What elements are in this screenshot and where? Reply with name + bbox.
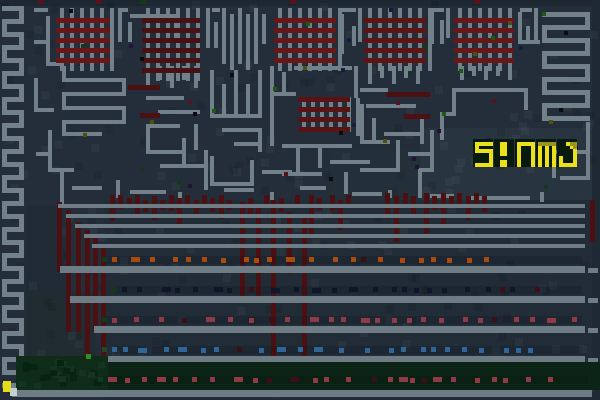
hud-letter-pixel <box>503 163 507 167</box>
mottle-tile <box>386 305 394 313</box>
hud-letter-pixel <box>545 163 549 167</box>
dash <box>269 317 274 322</box>
ground-mottle <box>88 372 95 378</box>
dash <box>478 318 483 323</box>
dash <box>294 287 299 292</box>
mottle-tile <box>445 178 453 186</box>
brick-tick-bottom <box>288 63 292 71</box>
ground-mottle <box>59 376 66 382</box>
brick-bar <box>298 97 350 102</box>
mottle-tile <box>440 142 448 150</box>
maze-segment <box>360 168 400 172</box>
dash <box>463 317 468 322</box>
brick-gridline <box>176 18 180 73</box>
mottle-tile <box>452 176 460 184</box>
drip-line <box>169 195 174 211</box>
brick-tick-top <box>80 8 84 18</box>
scatter-dot <box>150 120 154 124</box>
brick-bar <box>274 38 336 43</box>
maze-segment <box>34 108 54 112</box>
dash <box>572 317 577 322</box>
mottle-tile <box>435 86 443 94</box>
red-bar <box>128 85 160 90</box>
dash <box>234 377 243 382</box>
maze-segment <box>48 130 52 172</box>
maze-segment <box>62 124 66 132</box>
hud-letter-pixel <box>538 163 542 167</box>
dash-lead-dot <box>112 287 117 292</box>
white-pixel <box>10 388 17 396</box>
dash <box>400 258 405 263</box>
ground-mottle <box>34 383 41 389</box>
brick-tick-top <box>100 8 104 18</box>
mottle-tile <box>179 276 187 284</box>
dash <box>324 377 329 382</box>
mottle-tile <box>498 274 506 282</box>
maze-segment <box>258 70 262 114</box>
brick-tick-bottom <box>308 63 312 71</box>
scatter-dot <box>129 44 133 48</box>
dash <box>259 348 264 353</box>
dash <box>475 378 480 383</box>
stripe-end-block <box>588 268 598 273</box>
drip-line <box>177 198 182 224</box>
mottle-tile <box>444 302 452 310</box>
dash <box>108 377 117 382</box>
dash <box>504 348 509 353</box>
maze-segment <box>34 8 48 12</box>
mottle-tile <box>497 128 505 136</box>
red-bar <box>404 114 430 119</box>
maze-segment <box>128 22 132 42</box>
scatter-dot <box>284 172 288 176</box>
dash <box>112 257 117 262</box>
scatter-dot <box>83 133 87 137</box>
brick-tick-bottom <box>60 63 64 71</box>
scatter-dot <box>459 69 463 73</box>
dash <box>514 317 519 322</box>
dash <box>125 378 130 383</box>
top-edge-dot <box>38 0 44 4</box>
brick-bar <box>142 38 200 43</box>
drip-line <box>57 202 62 272</box>
dash <box>202 257 207 262</box>
radiator-line <box>542 90 590 95</box>
brick-gridline <box>338 18 342 63</box>
scatter-dot <box>303 66 307 70</box>
dash <box>399 377 408 382</box>
dash <box>422 378 427 383</box>
brick-bar <box>56 48 110 53</box>
scatter-dot <box>519 46 523 50</box>
dash <box>451 377 456 382</box>
dash <box>277 347 286 352</box>
top-edge-dot <box>140 0 146 4</box>
brick-bar <box>298 117 350 122</box>
dash <box>392 318 397 323</box>
dash <box>123 347 128 352</box>
ground-mottle <box>63 368 70 374</box>
maze-segment <box>210 70 214 114</box>
scatter-dot <box>473 52 477 56</box>
scatter-dot <box>69 9 73 13</box>
maze-segment <box>210 156 214 184</box>
brick-tick-bottom <box>146 73 150 81</box>
maze-segment <box>194 124 198 150</box>
ground-mottle <box>30 364 37 370</box>
dash <box>442 288 447 293</box>
scatter-dot <box>193 112 197 116</box>
brick-tick-top <box>196 8 200 18</box>
brick-tick-bottom <box>186 73 190 81</box>
dash <box>214 347 219 352</box>
ground-mottle <box>98 362 105 368</box>
brick-bar <box>274 28 336 33</box>
maze-segment <box>540 192 544 202</box>
dash <box>462 347 467 352</box>
stripe-thin <box>84 234 585 238</box>
hud-letter-pixel <box>503 153 507 157</box>
mottle-tile <box>188 154 196 162</box>
mottle-tile <box>152 337 160 345</box>
radiator-line <box>542 51 590 56</box>
dash <box>206 317 215 322</box>
drip-line <box>590 200 595 242</box>
maze-segment <box>146 124 180 128</box>
dash <box>201 348 206 353</box>
scatter-dot <box>230 73 234 77</box>
brick-tick-top <box>468 8 472 18</box>
dash <box>339 348 344 353</box>
maze-segment <box>270 192 274 200</box>
maze-segment <box>234 142 262 146</box>
dash <box>271 288 280 293</box>
dash <box>192 377 197 382</box>
brick-bar <box>454 18 514 23</box>
dash <box>314 347 323 352</box>
scatter-dot <box>188 100 192 104</box>
dash <box>535 287 540 292</box>
maze-segment <box>34 40 46 44</box>
stripe-thick <box>60 266 585 273</box>
maze-segment <box>122 110 126 120</box>
mottle-tile <box>75 162 83 170</box>
drip-line <box>93 238 98 332</box>
dash <box>267 378 272 383</box>
scatter-dot <box>188 184 192 188</box>
mottle-tile <box>157 172 165 180</box>
dash <box>122 287 127 292</box>
maze-segment <box>224 188 254 192</box>
maze-segment <box>212 8 220 12</box>
dash <box>361 318 370 323</box>
dash <box>510 287 515 292</box>
maze-segment <box>330 160 370 164</box>
dash <box>310 317 319 322</box>
maze-segment <box>396 140 400 170</box>
brick-tick-top <box>156 8 160 18</box>
mottle-tile <box>50 6 58 14</box>
brick-gridline <box>146 18 150 73</box>
brick-tick-bottom <box>318 63 322 71</box>
maze-segment <box>62 96 66 106</box>
brick-tick-top <box>498 8 502 18</box>
brick-tick-top <box>298 8 302 18</box>
mottle-tile <box>105 125 113 133</box>
dash <box>249 318 254 323</box>
maze-segment <box>206 8 210 48</box>
brick-bar <box>56 28 110 33</box>
brick-bar <box>454 28 514 33</box>
maze-segment <box>518 40 540 44</box>
brick-tick-top <box>176 8 180 18</box>
mottle-tile <box>237 307 245 315</box>
maze-segment <box>258 128 262 152</box>
dash <box>388 377 393 382</box>
radiator-line <box>542 12 590 17</box>
brick-tick-bottom <box>90 63 94 71</box>
scatter-dot <box>408 71 412 75</box>
mottle-tile <box>475 303 483 311</box>
maze-segment <box>358 8 362 42</box>
dash <box>526 377 531 382</box>
dash-lead-dot <box>98 377 103 382</box>
dash <box>392 287 397 292</box>
brick-bar <box>56 58 110 63</box>
dash <box>401 347 406 352</box>
red-bar <box>140 113 160 118</box>
dash <box>500 287 505 292</box>
ground-mottle <box>50 370 57 376</box>
maze-segment <box>62 78 126 82</box>
dash <box>214 287 223 292</box>
maze-segment <box>296 148 300 174</box>
maze-segment <box>34 78 38 108</box>
brick-tick-bottom <box>508 63 512 71</box>
brick-bar <box>142 58 200 63</box>
maze-segment <box>118 8 122 42</box>
dash <box>210 377 215 382</box>
dash <box>182 318 187 323</box>
dash <box>253 378 258 383</box>
dash <box>142 377 147 382</box>
maze-segment <box>160 164 206 168</box>
brick-tick-top <box>428 8 432 18</box>
mottle-tile <box>55 141 63 149</box>
brick-tick-bottom <box>378 63 382 71</box>
scatter-dot <box>544 185 548 189</box>
brick-tick-top <box>418 8 422 18</box>
maze-segment <box>210 182 254 186</box>
brick-tick-top <box>398 8 402 18</box>
brick-tick-bottom <box>368 63 372 71</box>
maze-segment <box>204 150 208 190</box>
red-bar <box>386 92 430 97</box>
mottle-tile <box>28 67 36 75</box>
hud-letter-pixel <box>489 163 493 167</box>
dash <box>309 257 314 262</box>
brick-tick-top <box>478 8 482 18</box>
maze-segment <box>62 106 126 110</box>
scatter-dot <box>339 131 343 135</box>
mottle-tile <box>510 113 518 121</box>
mottle-tile <box>300 79 308 87</box>
dash <box>447 258 452 263</box>
brick-tick-bottom <box>428 63 432 71</box>
dash <box>173 377 178 382</box>
brick-bar <box>364 48 426 53</box>
brick-tick-top <box>166 8 170 18</box>
dash <box>249 287 254 292</box>
mottle-tile <box>94 171 102 179</box>
brick-tick-top <box>338 8 342 18</box>
dash <box>164 347 169 352</box>
scatter-dot <box>549 120 553 124</box>
brick-tick-top <box>368 8 372 18</box>
stripe-thin <box>92 244 585 248</box>
scatter-dot <box>442 112 446 116</box>
drip-line <box>330 195 335 211</box>
radiator-line <box>542 103 590 108</box>
game-screen[interactable] <box>0 0 600 400</box>
brick-tick-bottom <box>478 63 482 71</box>
dash <box>419 258 424 263</box>
dash <box>528 348 533 353</box>
brick-bar <box>274 48 336 53</box>
dash <box>548 377 553 382</box>
maze-segment <box>250 160 254 184</box>
brick-gridline <box>428 18 432 63</box>
brick-tick-top <box>308 8 312 18</box>
brick-gridline <box>166 18 170 73</box>
dash <box>389 348 394 353</box>
scatter-dot <box>352 123 356 127</box>
dash <box>267 257 272 262</box>
mottle-tile <box>261 186 269 194</box>
maze-segment <box>418 170 422 198</box>
brick-tick-bottom <box>388 63 392 71</box>
brick-tick-top <box>60 8 64 18</box>
brick-tick-top <box>328 8 332 18</box>
scatter-dot <box>341 68 345 72</box>
maze-segment <box>62 92 126 96</box>
brick-gridline <box>110 18 114 63</box>
dash <box>175 288 180 293</box>
stripe-thick <box>94 326 585 333</box>
scene-layer <box>0 0 600 400</box>
dash <box>329 317 334 322</box>
brick-tick-top <box>378 8 382 18</box>
brick-bar <box>454 58 514 63</box>
mottle-tile <box>26 31 34 39</box>
maze-segment <box>282 72 286 94</box>
dash <box>228 317 233 322</box>
brick-tick-bottom <box>80 63 84 71</box>
dash <box>427 288 432 293</box>
mottle-tile <box>408 303 416 311</box>
maze-segment <box>524 88 528 110</box>
mottle-tile <box>7 76 15 84</box>
dash <box>312 288 321 293</box>
dash <box>112 318 117 323</box>
dash <box>286 257 295 262</box>
drip-line <box>76 222 81 332</box>
brick-bar <box>364 58 426 63</box>
mottle-tile <box>519 122 527 130</box>
scatter-dot <box>508 21 512 25</box>
drip-line <box>441 193 446 227</box>
dash <box>410 378 415 383</box>
maze-segment <box>470 196 530 200</box>
top-comb-line <box>230 14 234 70</box>
scatter-dot <box>329 177 333 181</box>
dash <box>414 288 419 293</box>
scatter-dot <box>347 38 351 42</box>
dash <box>227 288 232 293</box>
brick-bar <box>142 18 200 23</box>
maze-segment <box>366 104 416 108</box>
dash <box>221 258 226 263</box>
mottle-tile <box>35 47 43 55</box>
mottle-tile <box>524 111 532 119</box>
dash <box>373 287 378 292</box>
hud-letter-pixel <box>517 163 521 167</box>
dash <box>378 257 383 262</box>
bright-green-pixel <box>86 354 91 359</box>
brick-tick-bottom <box>418 63 422 71</box>
brick-tick-top <box>288 8 292 18</box>
dash <box>131 257 140 262</box>
radiator-line <box>542 25 590 30</box>
dash <box>486 287 491 292</box>
maze-segment <box>62 132 102 136</box>
brick-tick-top <box>318 8 322 18</box>
maze-segment <box>234 70 238 114</box>
scatter-dot <box>396 101 400 105</box>
maze-segment <box>318 148 322 168</box>
dash <box>157 377 166 382</box>
stripe-end-block <box>588 298 598 303</box>
maze-segment <box>300 186 326 190</box>
maze-segment <box>392 66 396 84</box>
scatter-dot <box>412 157 416 161</box>
brick-tick-bottom <box>176 73 180 81</box>
mottle-tile <box>41 91 49 99</box>
brick-tick-bottom <box>166 73 170 81</box>
mottle-tile <box>91 144 99 152</box>
brick-tick-bottom <box>398 63 402 71</box>
ground-mottle <box>60 381 67 387</box>
brick-bar <box>56 18 110 23</box>
mottle-tile <box>498 333 506 341</box>
top-comb-line <box>238 8 242 64</box>
maze-segment <box>146 124 150 152</box>
top-edge-dot <box>96 0 102 4</box>
scatter-dot <box>559 108 563 112</box>
scatter-dot <box>273 87 277 91</box>
top-edge-dot <box>474 0 480 4</box>
brick-tick-bottom <box>70 63 74 71</box>
brick-tick-bottom <box>498 63 502 71</box>
dash <box>285 317 290 322</box>
dash <box>547 318 556 323</box>
mottle-tile <box>412 274 420 282</box>
scatter-dot <box>415 165 419 169</box>
mottle-tile <box>261 159 269 167</box>
dash <box>351 257 356 262</box>
dash <box>341 317 346 322</box>
maze-segment <box>360 88 388 92</box>
